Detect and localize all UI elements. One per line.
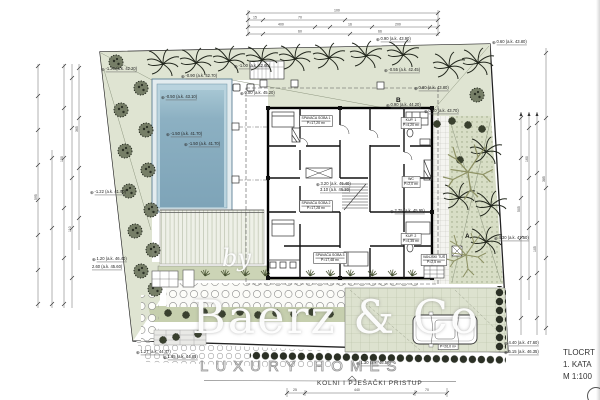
svg-text:66: 66: [378, 30, 382, 34]
svg-text:200: 200: [395, 23, 401, 27]
bottom-dimension-chain: [285, 388, 449, 397]
building-footprint: [246, 88, 438, 284]
svg-text:160: 160: [525, 156, 529, 162]
svg-text:505: 505: [517, 206, 521, 212]
svg-text:70: 70: [425, 388, 429, 392]
svg-text:385: 385: [542, 176, 546, 182]
svg-text:60: 60: [298, 30, 302, 34]
sun-deck: [160, 210, 264, 264]
svg-text:595: 595: [34, 194, 38, 200]
svg-text:70: 70: [298, 16, 302, 20]
floor-plan-canvas: 100 15 70 400 16 200 60 66 25 440 70 595…: [0, 0, 600, 400]
swimming-pool: [152, 79, 232, 212]
drawing-floor: 1. KATA: [563, 361, 592, 369]
svg-text:150: 150: [60, 156, 64, 162]
svg-text:15: 15: [253, 16, 257, 20]
svg-text:B: B: [396, 97, 401, 104]
svg-text:105: 105: [533, 246, 537, 252]
svg-text:400: 400: [278, 23, 284, 27]
svg-text:16: 16: [348, 23, 352, 27]
street-access-label: KOLNI I PJEŠAČKI PRISTUP: [317, 380, 423, 387]
svg-text:A: A: [465, 233, 470, 240]
svg-text:100: 100: [334, 9, 340, 13]
svg-text:440: 440: [354, 388, 360, 392]
site-plan-drawing: 100 15 70 400 16 200 60 66 25 440 70 595…: [0, 0, 600, 400]
svg-text:110: 110: [68, 226, 72, 232]
svg-text:365: 365: [75, 126, 79, 132]
scan-edge-shadow: [596, 0, 600, 400]
svg-text:25: 25: [293, 388, 297, 392]
drawing-title: TLOCRT: [563, 349, 595, 357]
drawing-scale: M 1:100: [563, 373, 592, 381]
left-dimension-chain: [36, 64, 81, 308]
parked-car: [413, 312, 477, 347]
planter-boxes: [152, 270, 194, 287]
top-dimension-chain: [246, 10, 440, 36]
right-dimension-chain: [519, 48, 548, 335]
